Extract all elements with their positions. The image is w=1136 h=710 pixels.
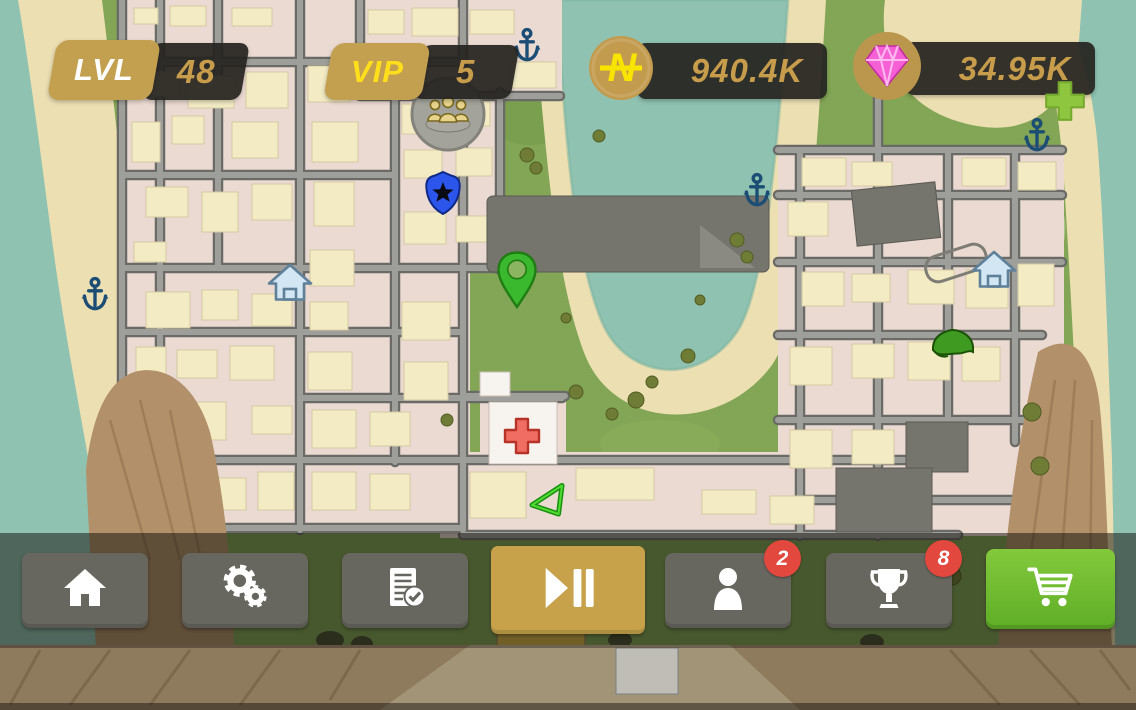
vip-label: VIP [351,54,404,90]
tasks-button[interactable] [342,553,468,628]
document-check-icon [381,564,429,617]
home-icon [61,564,109,617]
gears-icon [220,563,270,618]
safehouse-marker[interactable] [971,249,1017,289]
play-pause-icon [539,563,597,618]
settings-button[interactable] [182,553,308,628]
add-gems-plus-icon[interactable] [1042,78,1088,124]
player-arrow-marker [529,482,567,518]
person-icon [704,564,752,617]
top-hud: LVL 48 VIP 5 940.4K N 34.95K [0,0,1136,120]
vip-value: 5 [456,53,475,91]
vip-badge[interactable]: VIP [323,43,431,100]
cash-amount: 940.4K [691,52,803,90]
anchor-marker[interactable] [80,276,110,314]
police-badge-marker[interactable] [422,170,464,216]
achievements-notification-badge: 8 [925,540,962,577]
screen-bottom-vignette [0,703,1136,710]
level-value: 48 [177,53,216,91]
location-pin-marker[interactable] [494,250,540,310]
achievements-button[interactable]: 8 [826,553,952,628]
game-screen: LVL 48 VIP 5 940.4K N 34.95K [0,0,1136,710]
friends-button[interactable]: 2 [665,553,791,628]
anchor-marker[interactable] [742,172,772,210]
level-label: LVL [74,52,134,88]
cart-icon [1024,562,1078,617]
helmet-marker[interactable] [928,326,978,362]
shop-button[interactable] [986,549,1115,629]
safehouse-marker[interactable] [267,262,313,302]
home-button[interactable] [22,553,148,628]
cash-counter[interactable]: 940.4K [637,43,827,99]
play-pause-button[interactable] [491,546,645,634]
friends-notification-badge: 2 [764,540,801,577]
bottom-dim-overlay [0,648,1136,710]
cash-coin-icon: N [588,35,654,106]
level-badge[interactable]: LVL [47,40,162,100]
trophy-icon [865,564,913,617]
diamond-icon [852,31,922,106]
hospital-cross-marker[interactable] [501,415,543,457]
